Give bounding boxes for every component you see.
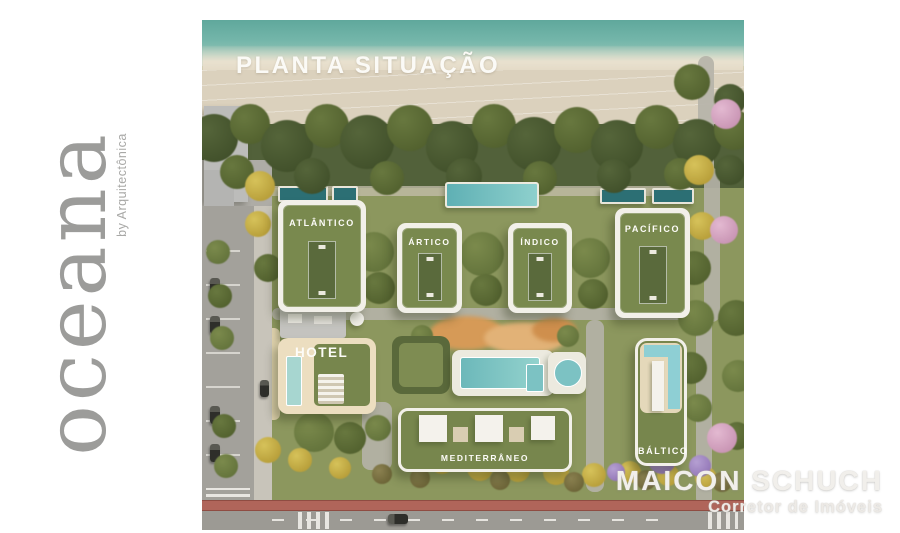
site-plan: ATLÂNTICO ÁRTICO ÍNDICO PACÍFICO bbox=[202, 20, 744, 530]
tree bbox=[206, 240, 230, 264]
tree bbox=[710, 216, 738, 244]
watermark: MAICON SCHUCH Corretor de Imóveis bbox=[616, 465, 883, 517]
sunken-garden bbox=[392, 336, 450, 394]
sunken-garden-lawn bbox=[399, 343, 443, 387]
tree bbox=[208, 284, 232, 308]
building-atlantico: ATLÂNTICO bbox=[278, 200, 366, 312]
tree bbox=[490, 470, 510, 490]
tree bbox=[582, 463, 606, 487]
hotel-pool bbox=[286, 356, 302, 406]
roof-terrace bbox=[528, 253, 552, 301]
spa bbox=[526, 364, 544, 392]
tree bbox=[334, 422, 366, 454]
building-mediterraneo: MEDITERRÂNEO bbox=[398, 408, 572, 472]
tree bbox=[370, 161, 404, 195]
tree bbox=[214, 454, 238, 478]
watermark-name: MAICON SCHUCH bbox=[616, 465, 883, 497]
brand-byline: by Arquitectônica bbox=[113, 110, 131, 260]
building-label: ÁRTICO bbox=[402, 237, 457, 247]
roof-unit bbox=[531, 416, 555, 440]
roof-unit bbox=[652, 361, 664, 411]
building-label: PACÍFICO bbox=[620, 224, 685, 234]
green-roof: ÁRTICO bbox=[402, 228, 457, 308]
roof-terrace bbox=[308, 241, 336, 299]
green-roof: ATLÂNTICO bbox=[283, 205, 361, 307]
tree bbox=[365, 415, 391, 441]
tree bbox=[684, 155, 714, 185]
building-label: BÁLTICO bbox=[638, 446, 684, 456]
spa-circle bbox=[554, 359, 582, 387]
lap-pool bbox=[445, 182, 539, 208]
tree bbox=[255, 437, 281, 463]
tree bbox=[294, 412, 334, 452]
tree bbox=[288, 448, 312, 472]
watermark-subtitle: Corretor de Imóveis bbox=[616, 498, 883, 517]
page: oceana by Arquitectônica bbox=[0, 0, 900, 533]
tree bbox=[210, 326, 234, 350]
building-indico: ÍNDICO bbox=[508, 223, 572, 313]
green-roof: ÍNDICO bbox=[513, 228, 567, 308]
tree bbox=[557, 325, 579, 347]
tree bbox=[564, 472, 584, 492]
tree bbox=[460, 232, 504, 276]
plan-title: PLANTA SITUAÇÃO bbox=[236, 52, 500, 80]
tree bbox=[674, 64, 710, 100]
hotel-stairs bbox=[318, 374, 344, 404]
green-roof: PACÍFICO bbox=[620, 213, 685, 313]
tree bbox=[245, 171, 275, 201]
tree bbox=[711, 99, 741, 129]
tree bbox=[707, 423, 737, 453]
tree bbox=[363, 272, 395, 304]
building-label: HOTEL bbox=[295, 345, 348, 360]
tree bbox=[245, 211, 271, 237]
building-baltico: BÁLTICO bbox=[635, 338, 687, 466]
tree bbox=[372, 464, 392, 484]
building-hotel: HOTEL bbox=[278, 338, 376, 414]
roof-unit bbox=[475, 415, 503, 442]
roof-terrace bbox=[418, 253, 442, 301]
building-artico: ÁRTICO bbox=[397, 223, 462, 313]
building-label: ÍNDICO bbox=[513, 237, 567, 247]
tree bbox=[718, 300, 744, 336]
roof-patio bbox=[509, 427, 524, 442]
roof-pool bbox=[668, 345, 680, 409]
tree bbox=[212, 414, 236, 438]
tree bbox=[294, 158, 330, 194]
tree bbox=[329, 457, 351, 479]
building-label: MEDITERRÂNEO bbox=[401, 453, 569, 463]
tree bbox=[715, 155, 744, 185]
roof-unit bbox=[314, 316, 332, 324]
roof-patio bbox=[453, 427, 468, 442]
tree bbox=[470, 274, 502, 306]
building-label: ATLÂNTICO bbox=[283, 218, 361, 228]
tree bbox=[597, 159, 631, 193]
tree bbox=[570, 238, 610, 278]
tree bbox=[684, 394, 712, 422]
round-feature bbox=[350, 312, 364, 326]
tree bbox=[722, 360, 744, 392]
roof-unit bbox=[288, 314, 302, 323]
building-pacifico: PACÍFICO bbox=[615, 208, 690, 318]
roof-unit bbox=[419, 415, 447, 442]
tree bbox=[578, 279, 608, 309]
roof-terrace bbox=[639, 246, 667, 304]
